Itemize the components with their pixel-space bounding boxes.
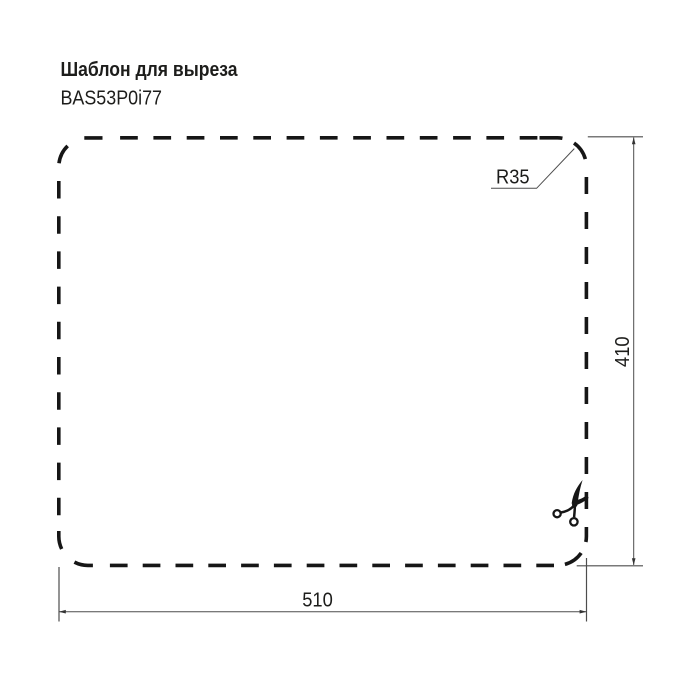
svg-text:510: 510: [302, 589, 333, 611]
svg-text:410: 410: [612, 336, 634, 367]
svg-text:R35: R35: [496, 166, 530, 188]
svg-text:BAS53P0i77: BAS53P0i77: [61, 86, 163, 109]
svg-text:Шаблон для выреза: Шаблон для выреза: [61, 59, 239, 81]
